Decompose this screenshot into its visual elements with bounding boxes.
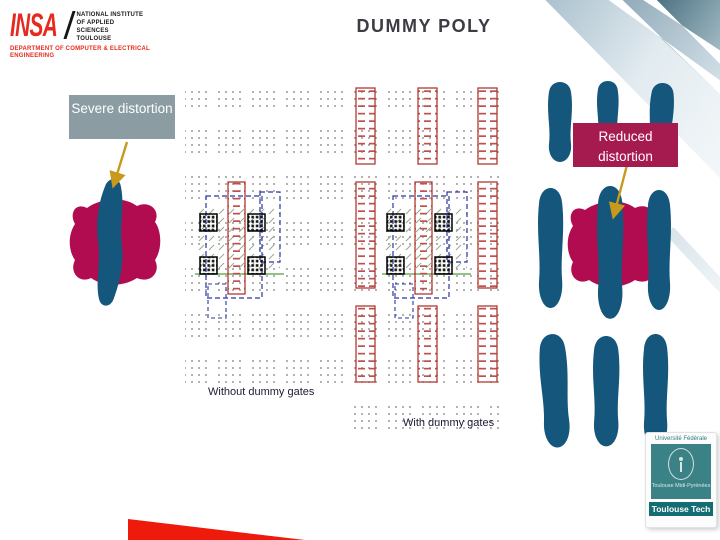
insa-institute-line: OF APPLIED (76, 19, 143, 27)
slide-title: DUMMY POLY (294, 16, 554, 37)
reduced-distortion-label: Reduced distortion (573, 123, 678, 167)
slide: INSA NATIONAL INSTITUTE OF APPLIED SCIEN… (0, 0, 720, 540)
bottom-red-wedge (128, 519, 305, 540)
toulouse-tech-brand: Toulouse Tech (649, 502, 713, 516)
seal-figure-head (679, 457, 683, 461)
toulouse-tech-logo: Université Fédérale Toulouse Midi-Pyréné… (645, 432, 717, 528)
poly-beans-row-2 (538, 186, 671, 319)
insa-department-line: ENGINEERING (10, 53, 180, 60)
layout-diagrams: Without dummy gates With dummy gates (180, 80, 510, 452)
seal-icon (668, 448, 694, 480)
left-diagram-caption: Without dummy gates (208, 386, 315, 398)
insa-institute-line: TOULOUSE (76, 35, 143, 43)
severe-arrow (114, 142, 127, 184)
severe-distortion-figure (55, 138, 185, 318)
toulouse-tech-badge: Toulouse Midi-Pyrénées (651, 444, 711, 499)
insa-logo: INSA NATIONAL INSTITUTE OF APPLIED SCIEN… (10, 10, 180, 60)
insa-slash-icon (64, 11, 76, 39)
severe-distortion-label: Severe distortion (69, 95, 175, 139)
distorted-poly-shape (97, 179, 122, 306)
seal-figure-body (680, 462, 682, 472)
insa-institute-line: SCIENCES (76, 27, 143, 35)
insa-acronym: INSA (10, 10, 57, 40)
insa-institute-line: NATIONAL INSTITUTE (76, 11, 143, 19)
toulouse-tech-university-line: Université Fédérale (655, 436, 707, 442)
right-diagram-caption: With dummy gates (403, 417, 495, 429)
toulouse-tech-region-line: Toulouse Midi-Pyrénées (652, 483, 711, 489)
insa-department-line: DEPARTMENT OF COMPUTER & ELECTRICAL (10, 46, 180, 53)
